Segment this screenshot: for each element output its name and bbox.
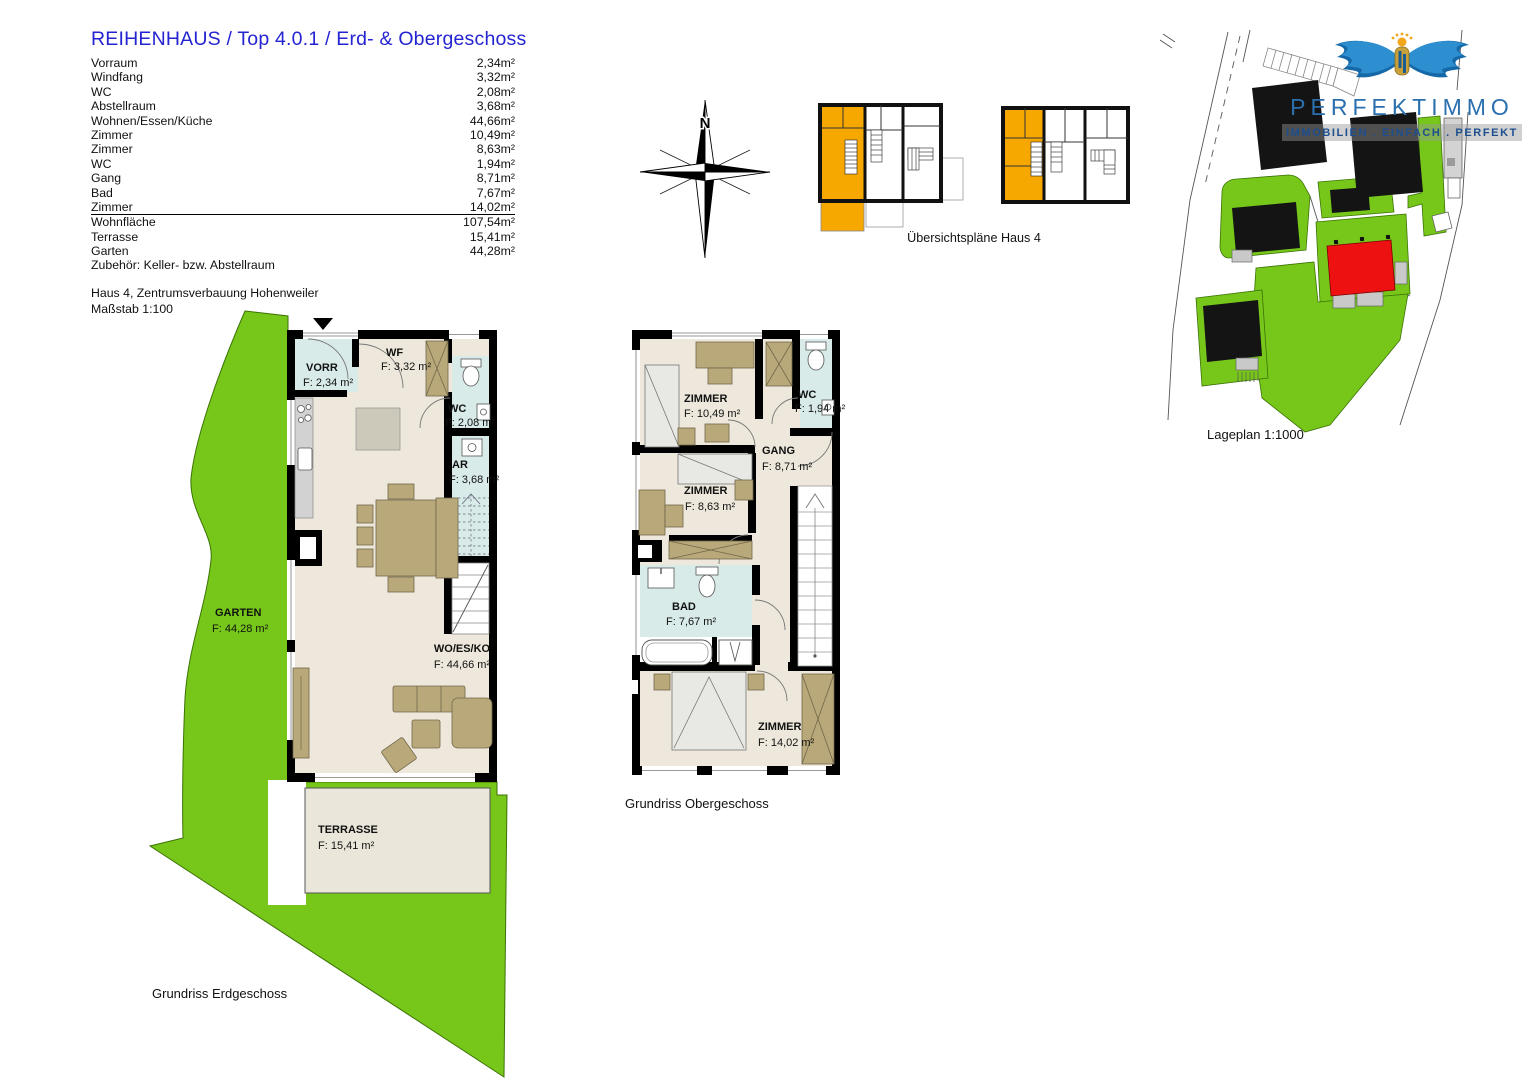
area-list-row: Vorraum2,34m²: [91, 56, 515, 70]
shower-icon: [719, 640, 752, 665]
logo-tagline: IMMOBILIEN . EINFACH . PERFEKT: [1282, 124, 1522, 141]
room-area: F: 8,63 m²: [685, 501, 735, 513]
room-label: Bad: [91, 186, 113, 200]
project-name: Haus 4, Zentrumsverbauung Hohenweiler: [91, 286, 319, 302]
logo-emblem-icon: [1395, 47, 1409, 75]
room-value: 10,49m²: [470, 128, 515, 142]
area-list-row: Gang8,71m²: [91, 171, 515, 185]
room-value: 14,02m²: [470, 200, 515, 214]
bathtub-icon: [642, 640, 712, 665]
room-value: 2,08m²: [477, 85, 515, 99]
room-label: Zimmer: [91, 200, 133, 214]
room-name: BAD: [672, 601, 696, 613]
room-value: 8,71m²: [477, 171, 515, 185]
room-name: VORR: [306, 362, 338, 374]
room-value: 7,67m²: [477, 186, 515, 200]
compass-rose-icon: N: [638, 93, 774, 259]
area-list-row: Zimmer10,49m²: [91, 128, 515, 142]
room-label: Wohnen/Essen/Küche: [91, 114, 212, 128]
total-row: Terrasse15,41m²: [91, 230, 515, 244]
room-label: WC: [91, 85, 112, 99]
total-value: 107,54m²: [463, 215, 515, 229]
brand-logo: PERFEKTIMMO IMMOBILIEN . EINFACH . PERFE…: [1282, 30, 1522, 141]
bed: [645, 365, 679, 447]
room-label: Windfang: [91, 70, 143, 84]
room-area: F: 3,68 m²: [449, 474, 499, 486]
room-area: F: 44,66 m²: [434, 659, 491, 671]
room-name: WO/ES/KO: [434, 643, 491, 655]
logo-name: PERFEKTIMMO: [1282, 94, 1522, 121]
page-title: REIHENHAUS / Top 4.0.1 / Erd- & Obergesc…: [91, 28, 526, 51]
area-list-row: WC2,08m²: [91, 85, 515, 99]
room-area: F: 2,08 m²: [445, 417, 495, 429]
appliance-icon: [462, 439, 482, 456]
room-area: F: 3,32 m²: [381, 361, 431, 373]
area-list-row: Abstellraum3,68m²: [91, 99, 515, 113]
siteplan-caption: Lageplan 1:1000: [1207, 427, 1304, 442]
room-name: ZIMMER: [758, 721, 801, 733]
logo-wing-right: [1407, 41, 1469, 78]
area-list: Vorraum2,34m² Windfang3,32m² WC2,08m² Ab…: [91, 56, 515, 273]
total-label: Wohnfläche: [91, 215, 156, 229]
room-area: F: 10,49 m²: [684, 408, 741, 420]
room-label: Abstellraum: [91, 99, 156, 113]
parcel-outline: [1432, 212, 1452, 232]
wardrobe: [802, 674, 834, 764]
room-name: ZIMMER: [684, 393, 727, 405]
overview-caption: Übersichtspläne Haus 4: [858, 231, 1090, 245]
room-area: F: 2,34 m²: [303, 377, 353, 389]
room-name: GARTEN: [215, 607, 262, 619]
ground-floor-caption: Grundriss Erdgeschoss: [152, 986, 287, 1001]
room-label: WC: [91, 157, 112, 171]
total-label: Terrasse: [91, 230, 138, 244]
room-area: F: 7,67 m²: [666, 616, 716, 628]
room-area: F: 14,02 m²: [758, 737, 815, 749]
room-name: GANG: [762, 445, 795, 457]
room-area: F: 1,94 m²: [795, 403, 845, 415]
logo-wings-icon: [1327, 30, 1477, 88]
double-bed: [672, 672, 746, 750]
bed: [678, 454, 752, 484]
overview-plan-og: [1003, 108, 1128, 202]
sideboard: [293, 668, 309, 758]
kitchen-island: [356, 408, 400, 450]
room-name: WC: [448, 403, 466, 415]
room-area: F: 8,71 m²: [762, 461, 812, 473]
stairs: [798, 486, 832, 666]
area-list-totals: Wohnfläche107,54m² Terrasse15,41m² Garte…: [91, 214, 515, 258]
area-list-row: Zimmer14,02m²: [91, 200, 515, 214]
wardrobe: [766, 342, 792, 386]
total-label: Garten: [91, 244, 129, 258]
room-name: WC: [798, 389, 816, 401]
room-name: AR: [452, 459, 468, 471]
total-row: Garten44,28m²: [91, 244, 515, 258]
path-gap: [268, 780, 306, 905]
ground-floor-plan: TERRASSE F: 15,41 m² GARTEN F: 44,28 m²: [145, 305, 520, 1080]
logo-sun-icon: [1392, 33, 1413, 47]
total-value: 44,28m²: [470, 244, 515, 258]
area-list-row: WC1,94m²: [91, 157, 515, 171]
room-value: 44,66m²: [470, 114, 515, 128]
room-label: Vorraum: [91, 56, 137, 70]
room-label: Zimmer: [91, 128, 133, 142]
total-value: 15,41m²: [470, 230, 515, 244]
entrance-arrow-icon: [313, 318, 333, 330]
room-area: F: 44,28 m²: [212, 623, 269, 635]
room-name: ZIMMER: [684, 485, 727, 497]
room-value: 3,68m²: [477, 99, 515, 113]
room-value: 1,94m²: [477, 157, 515, 171]
area-list-row: Windfang3,32m²: [91, 70, 515, 84]
washbasin-icon: [648, 568, 674, 588]
accessory-note: Zubehör: Keller- bzw. Abstellraum: [91, 258, 515, 272]
compass-north-label: N: [700, 115, 711, 132]
area-list-row: Zimmer8,63m²: [91, 142, 515, 156]
room-area: F: 15,41 m²: [318, 840, 375, 852]
terrasse: TERRASSE F: 15,41 m²: [305, 788, 490, 893]
room-value: 3,32m²: [477, 70, 515, 84]
upper-floor-caption: Grundriss Obergeschoss: [625, 796, 769, 811]
logo-wing-left: [1335, 41, 1397, 78]
floorplan-page: REIHENHAUS / Top 4.0.1 / Erd- & Obergesc…: [0, 0, 1527, 1080]
overview-plans: [815, 100, 1160, 240]
area-list-row: Bad7,67m²: [91, 186, 515, 200]
total-row: Wohnfläche107,54m²: [91, 215, 515, 229]
room-name: WF: [386, 347, 403, 359]
room-name: TERRASSE: [318, 824, 378, 836]
room-value: 2,34m²: [477, 56, 515, 70]
room-value: 8,63m²: [477, 142, 515, 156]
room-label: Gang: [91, 171, 121, 185]
area-list-row: Wohnen/Essen/Küche44,66m²: [91, 114, 515, 128]
room-label: Zimmer: [91, 142, 133, 156]
overview-plan-eg: [820, 105, 963, 231]
upper-floor-plan: ZIMMER F: 10,49 m² WC F: 1,94 m² GANG F:…: [615, 318, 850, 818]
